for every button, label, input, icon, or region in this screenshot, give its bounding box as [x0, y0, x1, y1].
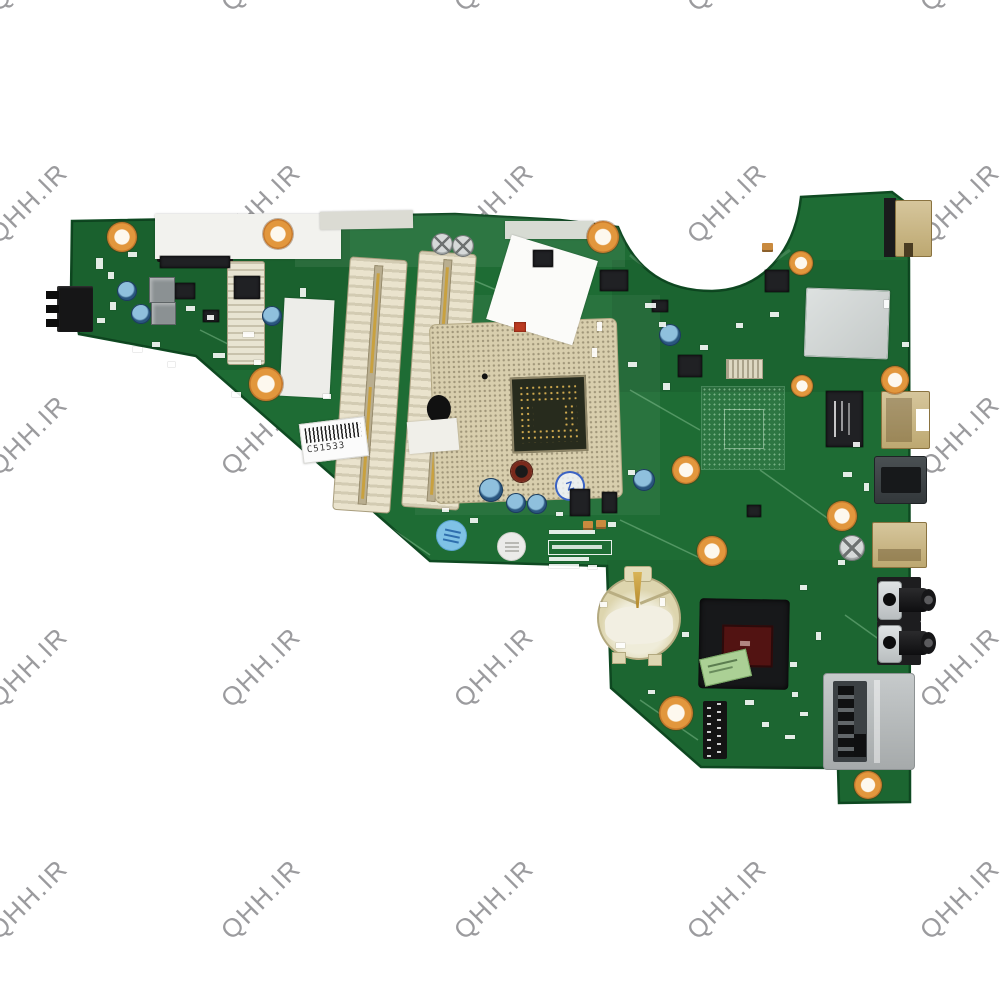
side-connector-prong — [46, 319, 59, 327]
inductor-block — [149, 277, 175, 303]
side-connector-prong — [46, 305, 59, 313]
tantalum-cap — [762, 243, 773, 252]
smd-component — [700, 345, 708, 350]
red-ring-inductor — [511, 461, 532, 482]
smd-component — [884, 300, 889, 308]
smd-component — [800, 585, 807, 590]
silkscreen-text — [549, 564, 579, 568]
ic-chip — [602, 492, 617, 513]
smd-component — [628, 470, 635, 475]
smd-component — [843, 472, 852, 477]
chipset-label — [699, 649, 752, 687]
smd-component — [864, 483, 869, 491]
mounting-hole — [854, 771, 882, 799]
mounting-hole — [672, 456, 700, 484]
ic-chip — [160, 256, 230, 268]
ic-chip — [533, 250, 553, 267]
smd-component — [648, 690, 655, 694]
battery-holder-foot — [612, 652, 626, 664]
smd-component — [736, 323, 743, 328]
barcode-text: C51533 — [306, 441, 345, 456]
smd-component — [152, 342, 160, 347]
smd-component — [97, 318, 105, 323]
smd-component — [254, 360, 261, 365]
stamp-blue-ink — [433, 517, 470, 554]
smd-component — [128, 252, 137, 257]
mounting-hole — [249, 367, 283, 401]
capacitor-silver — [431, 233, 453, 255]
silkscreen-text — [549, 557, 589, 561]
small-header-connector — [726, 359, 763, 379]
side-connector-prong — [46, 291, 59, 299]
smd-component — [785, 735, 795, 739]
smd-component — [556, 512, 563, 516]
mounting-hole — [789, 251, 813, 275]
ic-chip — [678, 355, 702, 377]
smd-component — [770, 312, 779, 317]
smd-component — [838, 560, 845, 565]
smd-component — [800, 712, 808, 716]
barcode-label: C51533 — [299, 416, 369, 464]
smd-component — [442, 508, 449, 512]
tantalum-cap — [596, 520, 606, 529]
cpu-socket-opening — [510, 375, 589, 454]
capacitor-blue — [506, 493, 526, 513]
smd-component — [108, 272, 114, 279]
silkscreen-label-box — [548, 540, 612, 555]
smd-component — [616, 643, 625, 648]
smd-component — [96, 258, 103, 269]
capacitor-blue — [479, 478, 503, 502]
smd-component — [110, 302, 116, 310]
pin-header — [703, 701, 727, 759]
mounting-hole — [107, 222, 137, 252]
smd-component — [790, 662, 797, 667]
bga-pad — [702, 387, 784, 469]
smd-component — [207, 315, 214, 320]
smd-component — [213, 353, 225, 358]
ram-slot-1 — [332, 256, 408, 513]
battery-holder-foot — [648, 654, 662, 666]
ic-chip — [234, 276, 260, 299]
smd-component — [792, 692, 798, 697]
capacitor-blue — [131, 304, 151, 324]
smd-component — [902, 342, 909, 347]
heatsink-pad — [804, 288, 890, 360]
inductor-block — [151, 302, 176, 325]
sd-card-reader — [823, 673, 915, 770]
smd-component — [816, 632, 821, 640]
capacitor-blue — [262, 306, 282, 326]
ic-chip — [175, 283, 195, 299]
smd-component — [470, 518, 478, 523]
ic-chip — [600, 270, 628, 291]
smd-component — [243, 332, 254, 337]
capacitor-blue — [659, 324, 681, 346]
smd-component — [762, 722, 769, 727]
sticker-label — [407, 418, 460, 454]
fuse-red — [514, 322, 526, 332]
smd-component — [745, 700, 754, 705]
mounting-hole — [827, 501, 857, 531]
lan-port — [881, 391, 930, 449]
product-photo-motherboard: QHH.IRQHH.IRQHH.IRQHH.IRQHH.IRQHH.IRQHH.… — [0, 0, 1000, 1000]
audio-jack-1 — [877, 577, 939, 623]
smd-component — [608, 522, 616, 527]
socket-pin1-dot — [482, 373, 488, 379]
barcode-icon — [304, 422, 361, 444]
mounting-hole — [791, 375, 813, 397]
audio-jack-2 — [877, 621, 939, 666]
sticker-label — [155, 214, 341, 259]
smd-component — [588, 565, 597, 569]
sticker-label — [320, 210, 413, 230]
side-connector — [57, 286, 93, 332]
smd-component — [323, 394, 331, 399]
lan-chip — [826, 391, 863, 447]
smd-component — [133, 347, 142, 352]
smd-component — [186, 306, 195, 311]
power-port — [884, 198, 930, 257]
mounting-hole — [263, 219, 293, 249]
smd-component — [300, 288, 306, 297]
chipset-chip — [698, 598, 790, 690]
ic-chip — [765, 270, 789, 292]
smd-component — [682, 632, 689, 637]
capacitor-silver — [452, 235, 474, 257]
capacitor-blue — [633, 469, 655, 491]
ic-chip — [570, 489, 590, 516]
smd-component — [168, 362, 175, 367]
silkscreen-text — [549, 530, 595, 534]
smd-component — [592, 348, 597, 357]
smd-component — [660, 598, 665, 606]
usb-port — [872, 522, 927, 568]
smd-component — [600, 602, 607, 607]
smd-component — [628, 362, 637, 367]
capacitor-blue — [117, 281, 137, 301]
hdmi-port — [874, 456, 927, 504]
smd-component — [597, 322, 602, 331]
mounting-hole — [881, 366, 909, 394]
smd-component — [663, 383, 670, 390]
mounting-hole — [697, 536, 727, 566]
tantalum-cap — [583, 521, 593, 530]
sticker-label — [279, 298, 334, 398]
capacitor-blue — [527, 494, 547, 514]
smd-component — [659, 322, 666, 327]
smd-component — [232, 392, 241, 397]
mounting-hole — [587, 221, 619, 253]
stamp-white — [497, 532, 526, 561]
ic-chip — [747, 505, 761, 517]
smd-component — [853, 442, 860, 447]
capacitor-silver — [839, 535, 865, 561]
mounting-hole — [659, 696, 693, 730]
smd-component — [645, 303, 656, 308]
